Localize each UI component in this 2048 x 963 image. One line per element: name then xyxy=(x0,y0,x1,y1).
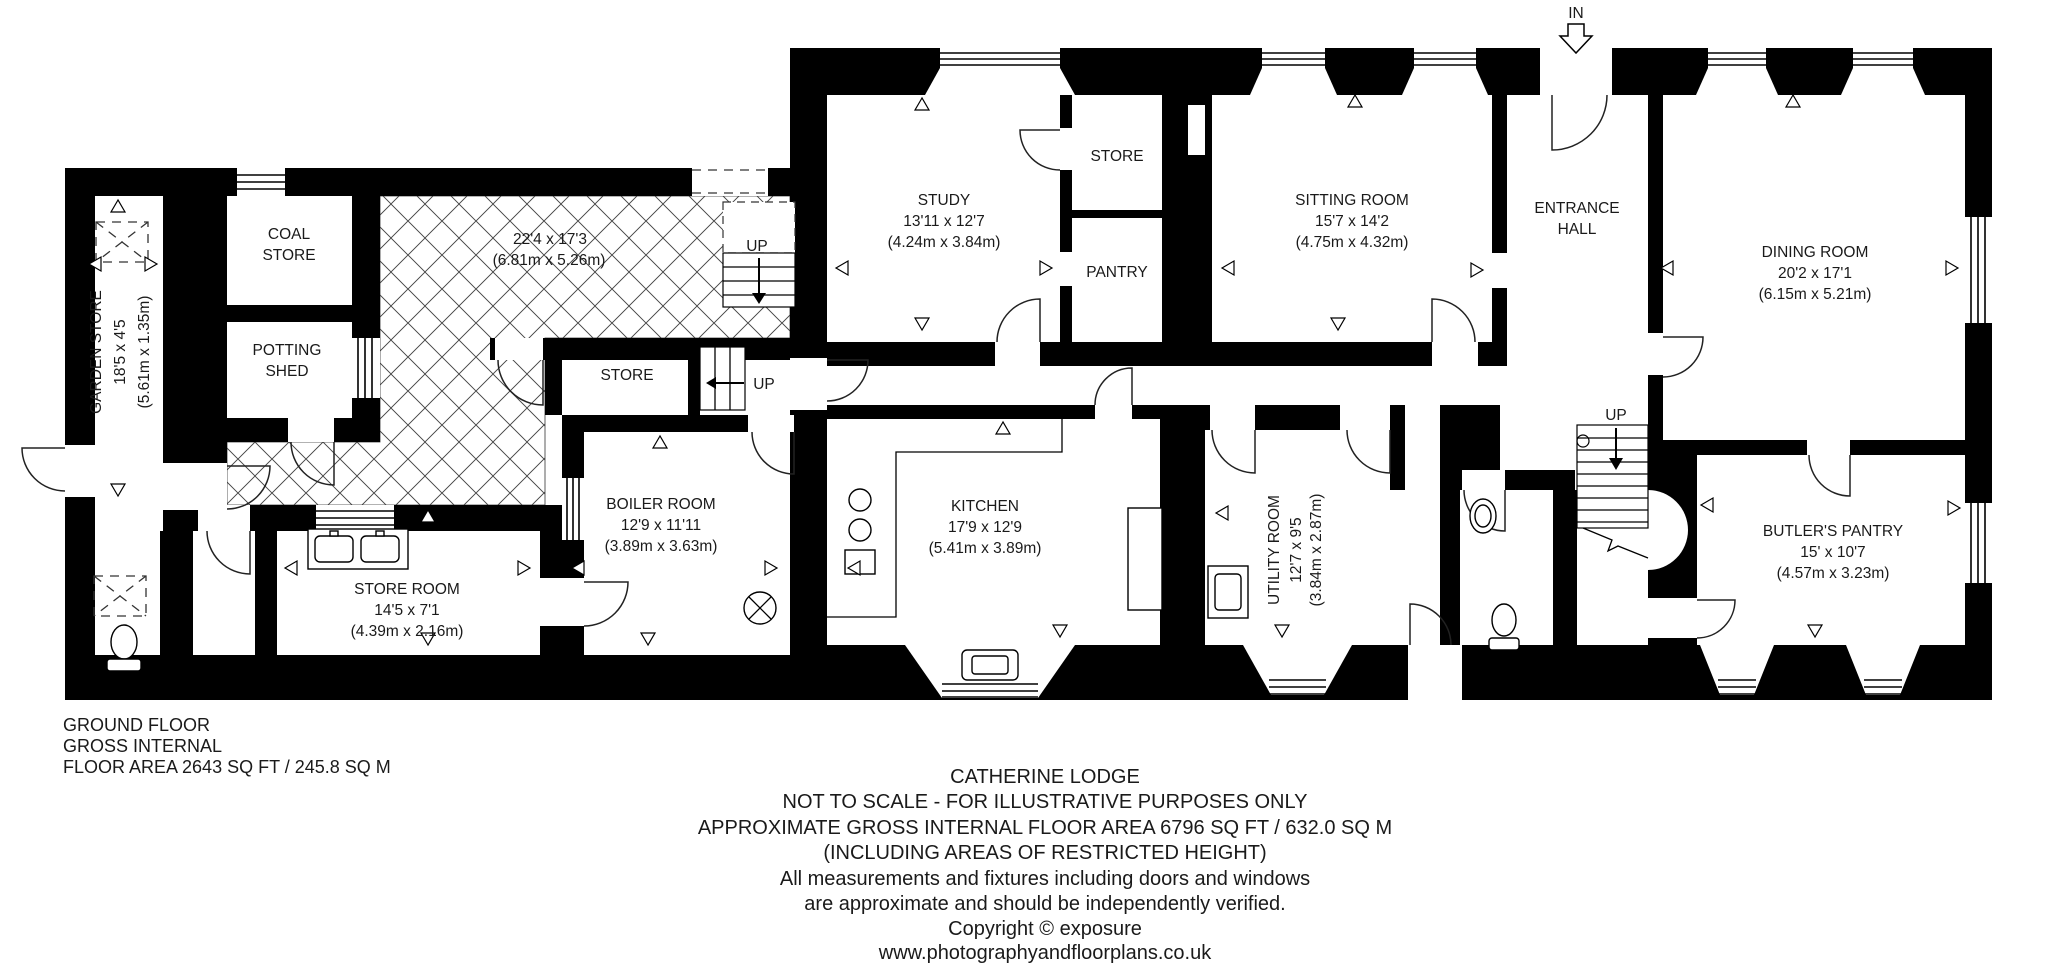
label-boiler-room-metric: (3.89m x 3.63m) xyxy=(605,538,718,555)
label-up-back: UP xyxy=(746,238,768,255)
boiler-icon xyxy=(744,592,776,624)
staircase-step xyxy=(700,347,745,410)
wc-basin-icon xyxy=(1470,499,1496,533)
footer-line-5: All measurements and fixtures including … xyxy=(780,868,1310,890)
double-sink-icon xyxy=(308,529,408,569)
footer-line-2: NOT TO SCALE - FOR ILLUSTRATIVE PURPOSES… xyxy=(783,791,1308,813)
footer-line-7: Copyright © exposure xyxy=(948,918,1142,940)
label-dining-room-name: DINING ROOM xyxy=(1762,244,1869,261)
label-store-room-name: STORE ROOM xyxy=(354,581,460,598)
label-kitchen-name: KITCHEN xyxy=(951,498,1019,515)
title-line-3: FLOOR AREA 2643 SQ FT / 245.8 SQ M xyxy=(63,757,391,777)
label-sitting-room-dims: 15'7 x 14'2 xyxy=(1315,213,1389,230)
label-boiler-room-name: BOILER ROOM xyxy=(606,496,715,513)
label-store-outbuilding: STORE xyxy=(600,367,653,384)
label-up-main: UP xyxy=(1605,407,1627,424)
floorplan-canvas: IN GARDEN STORE 18'5 x 4'5 (5.61m x 1.35… xyxy=(0,0,2048,963)
title-line-2: GROSS INTERNAL xyxy=(63,736,222,756)
footer-line-3: APPROXIMATE GROSS INTERNAL FLOOR AREA 67… xyxy=(698,817,1392,839)
label-sitting-room-name: SITTING ROOM xyxy=(1295,192,1409,209)
label-kitchen-metric: (5.41m x 3.89m) xyxy=(929,540,1042,557)
label-courtyard-metric: (6.81m x 5.26m) xyxy=(493,252,606,269)
label-potting-shed-1: POTTING xyxy=(253,342,322,359)
label-butlers-pantry-dims: 15' x 10'7 xyxy=(1800,544,1865,561)
label-coal-store-1: COAL xyxy=(268,226,311,243)
label-courtyard-dims: 22'4 x 17'3 xyxy=(513,231,587,248)
label-in: IN xyxy=(1568,5,1584,22)
label-garden-store-dims: 18'5 x 4'5 xyxy=(112,319,129,384)
label-utility-room-dims: 12'7 x 9'5 xyxy=(1288,517,1305,582)
label-entrance-hall-1: ENTRANCE xyxy=(1534,200,1619,217)
label-store-room-metric: (4.39m x 2.16m) xyxy=(351,623,464,640)
label-study-dims: 13'11 x 12'7 xyxy=(903,213,984,230)
title-line-1: GROUND FLOOR xyxy=(63,715,210,735)
label-utility-room-name: UTILITY ROOM xyxy=(1266,495,1283,605)
label-store-room-dims: 14'5 x 7'1 xyxy=(374,602,439,619)
label-utility-room-metric: (3.84m x 2.87m) xyxy=(1308,494,1325,607)
label-garden-store-metric: (5.61m x 1.35m) xyxy=(136,296,153,409)
wc-toilet-icon xyxy=(1489,604,1519,650)
footer-line-6: are approximate and should be independen… xyxy=(804,893,1285,915)
footer-line-1: CATHERINE LODGE xyxy=(950,766,1140,788)
utility-sink-icon xyxy=(1208,566,1248,618)
footer-line-4: (INCLUDING AREAS OF RESTRICTED HEIGHT) xyxy=(823,842,1266,864)
footer-line-8: www.photographyandfloorplans.co.uk xyxy=(878,942,1212,963)
label-entrance-hall-2: HALL xyxy=(1558,221,1597,238)
label-store-hall: STORE xyxy=(1090,148,1143,165)
label-dining-room-dims: 20'2 x 17'1 xyxy=(1778,265,1852,282)
label-potting-shed-2: SHED xyxy=(265,363,308,380)
label-sitting-room-metric: (4.75m x 4.32m) xyxy=(1296,234,1409,251)
label-up-step: UP xyxy=(753,376,775,393)
label-study-name: STUDY xyxy=(918,192,971,209)
label-boiler-room-dims: 12'9 x 11'11 xyxy=(621,517,701,534)
label-butlers-pantry-name: BUTLER'S PANTRY xyxy=(1763,523,1903,540)
kitchen-sink-icon xyxy=(962,650,1018,680)
label-study-metric: (4.24m x 3.84m) xyxy=(888,234,1001,251)
label-garden-store-name: GARDEN STORE xyxy=(88,290,105,414)
label-pantry: PANTRY xyxy=(1086,264,1147,281)
label-dining-room-metric: (6.15m x 5.21m) xyxy=(1759,286,1872,303)
label-coal-store-2: STORE xyxy=(262,247,315,264)
label-butlers-pantry-metric: (4.57m x 3.23m) xyxy=(1777,565,1890,582)
label-kitchen-dims: 17'9 x 12'9 xyxy=(948,519,1022,536)
